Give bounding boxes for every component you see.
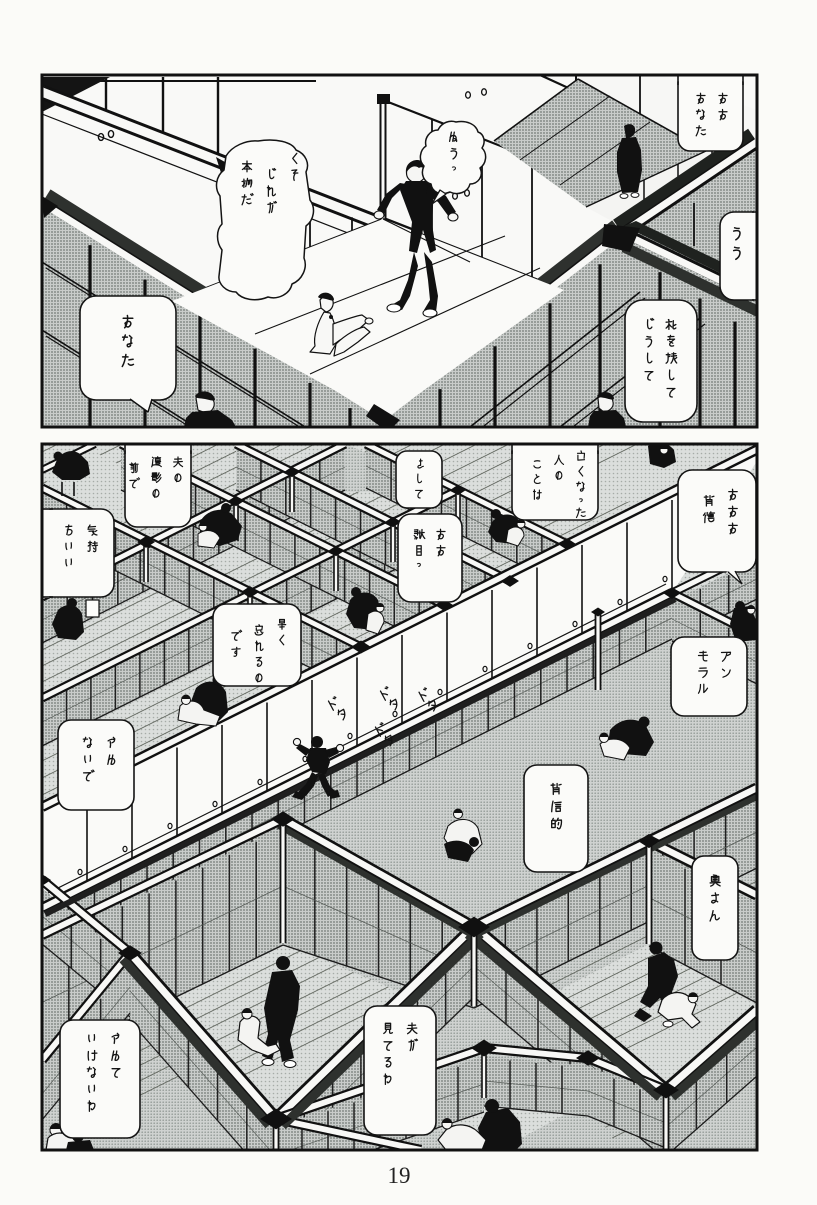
svg-text:19: 19 [388, 1163, 411, 1188]
